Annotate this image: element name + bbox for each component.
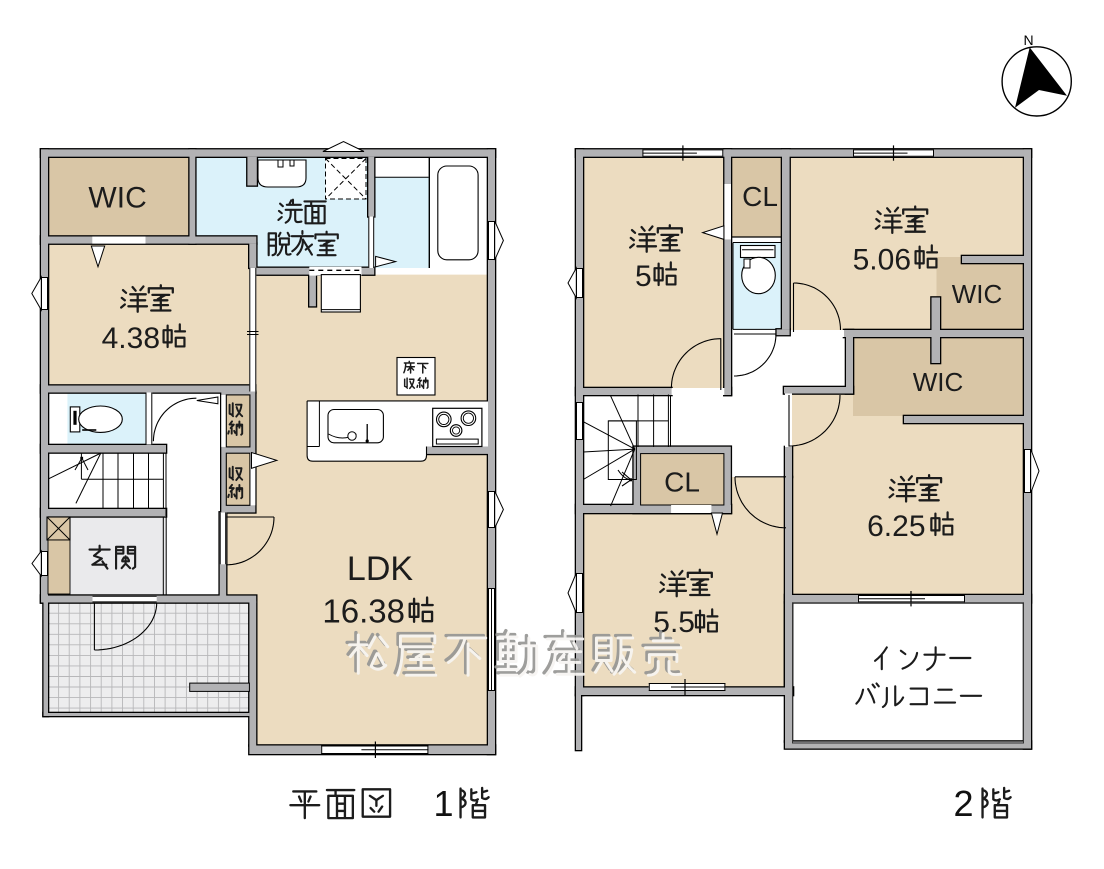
svg-text:WIC: WIC — [88, 182, 146, 215]
svg-text:5.06: 5.06 — [853, 244, 911, 277]
svg-text:LDK: LDK — [347, 550, 413, 588]
svg-text:N: N — [1023, 32, 1033, 48]
svg-text:6.25: 6.25 — [867, 510, 925, 543]
svg-text:2: 2 — [953, 783, 973, 824]
svg-text:WIC: WIC — [952, 279, 1003, 309]
svg-text:CL: CL — [742, 181, 778, 212]
svg-text:1: 1 — [433, 783, 453, 824]
svg-text:CL: CL — [664, 467, 700, 498]
svg-text:4.38: 4.38 — [102, 322, 160, 355]
svg-text:5: 5 — [635, 260, 652, 293]
svg-text:WIC: WIC — [913, 367, 964, 397]
svg-text:16.38: 16.38 — [322, 593, 405, 630]
